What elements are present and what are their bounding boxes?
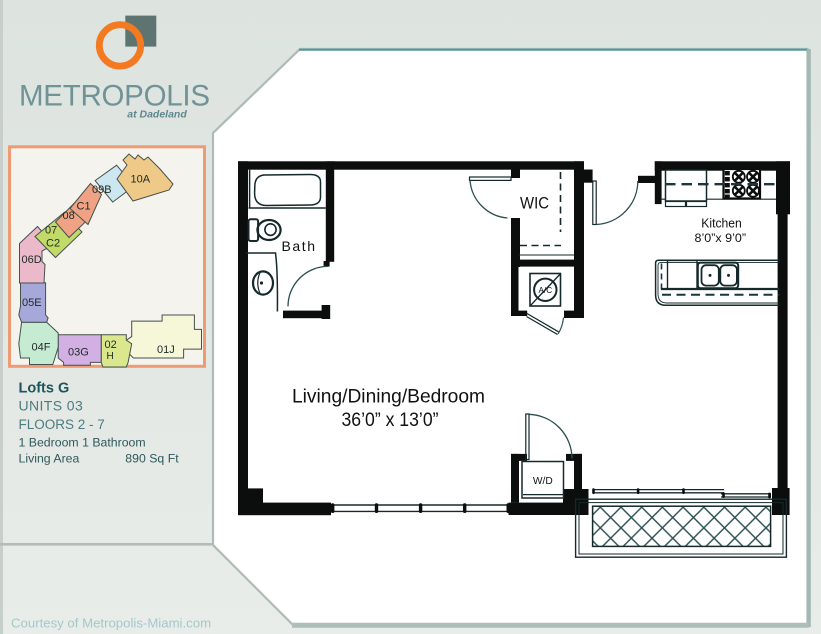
svg-text:at Dadeland: at Dadeland (127, 109, 187, 121)
svg-text:C1: C1 (77, 201, 91, 213)
svg-text:09B: 09B (92, 184, 112, 196)
svg-text:A/C: A/C (538, 286, 552, 295)
svg-text:03G: 03G (68, 347, 89, 359)
svg-text:Lofts G: Lofts G (19, 381, 70, 397)
svg-text:Courtesy of Metropolis-Miami.c: Courtesy of Metropolis-Miami.com (11, 616, 211, 631)
svg-text:Bath: Bath (282, 238, 316, 254)
svg-text:UNITS 03: UNITS 03 (19, 397, 84, 413)
svg-text:Living/Dining/Bedroom: Living/Dining/Bedroom (292, 385, 485, 407)
svg-text:07: 07 (45, 225, 57, 237)
svg-text:H: H (107, 351, 114, 362)
svg-text:C2: C2 (46, 238, 60, 250)
svg-text:06D: 06D (22, 254, 42, 266)
svg-text:10A: 10A (131, 174, 151, 186)
svg-text:08: 08 (63, 210, 75, 222)
svg-text:04F: 04F (32, 342, 51, 354)
svg-text:FLOORS 2 - 7: FLOORS 2 - 7 (19, 417, 105, 432)
svg-text:W/D: W/D (533, 476, 553, 487)
svg-text:01J: 01J (157, 344, 175, 356)
svg-text:Living Area: Living Area (19, 451, 80, 465)
svg-text:36’0” x 13’0”: 36’0” x 13’0” (342, 409, 439, 431)
svg-text:02: 02 (105, 339, 117, 351)
svg-text:WIC: WIC (520, 193, 549, 212)
svg-text:1 Bedroom 1 Bathroom: 1 Bedroom 1 Bathroom (19, 436, 146, 450)
svg-text:890 Sq Ft: 890 Sq Ft (125, 451, 179, 465)
svg-text:05E: 05E (22, 297, 42, 309)
svg-text:Kitchen: Kitchen (701, 216, 742, 230)
svg-text:8’0”x 9’0”: 8’0”x 9’0” (695, 231, 747, 245)
